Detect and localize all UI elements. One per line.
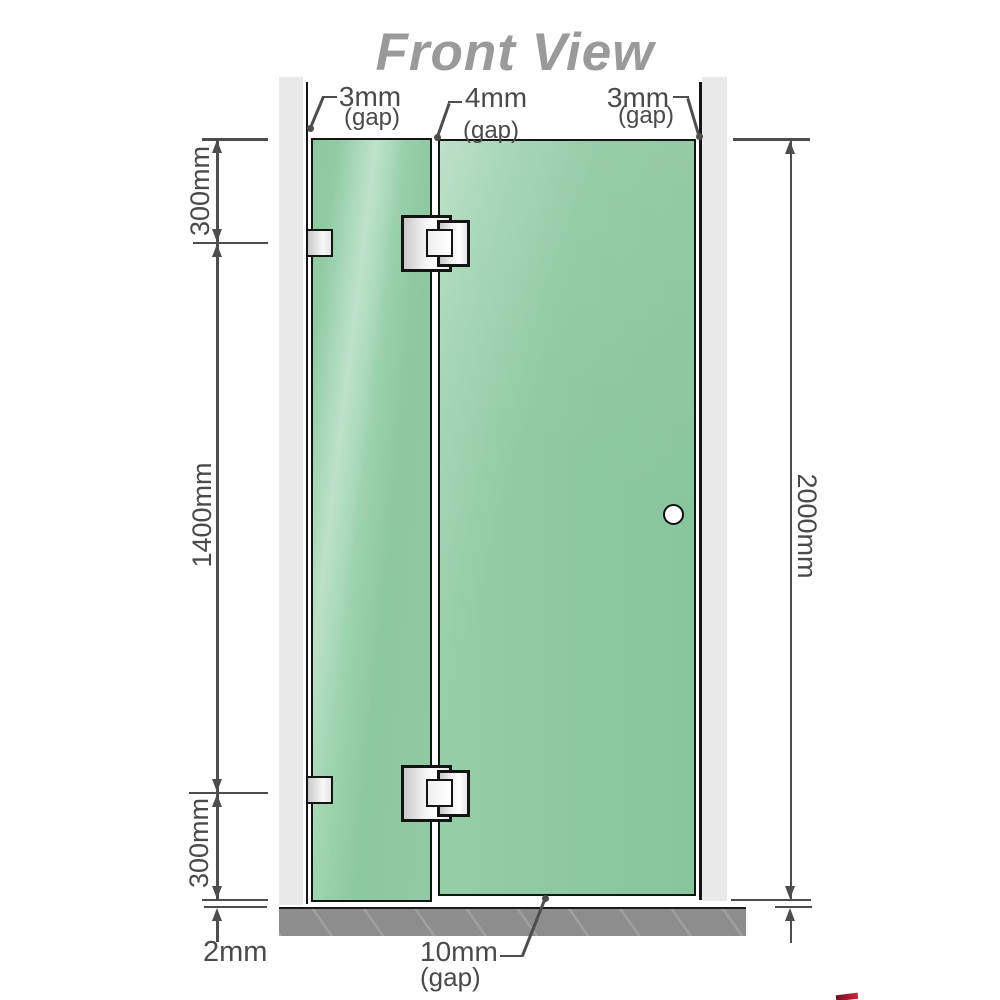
front-view-diagram: Front View 300mm 1400mm 300mm xyxy=(0,0,1000,1000)
logo-fragment xyxy=(836,993,859,1000)
right-wall xyxy=(702,77,727,901)
page-title: Front View xyxy=(335,22,695,83)
arrow-icon xyxy=(785,908,795,921)
floor-bar xyxy=(279,907,746,936)
dim-label-floor-offset: 2mm xyxy=(203,936,267,969)
wall-bracket-bottom xyxy=(306,776,333,804)
dim-label-left-bottom: 300mm xyxy=(184,763,214,923)
door-glass-panel xyxy=(438,139,696,896)
leader-line-middle-gap xyxy=(436,103,450,138)
right-wall-edge-line xyxy=(699,82,702,900)
gap-label-bottom-unit: (gap) xyxy=(420,962,481,993)
right-tick-top xyxy=(733,138,810,141)
leader-elbow-bottom-gap xyxy=(500,955,523,958)
hinge-top xyxy=(401,215,470,272)
gap-label-right-unit: (gap) xyxy=(606,102,686,130)
hinge-bottom xyxy=(401,765,470,822)
hinge-top-pivot xyxy=(426,229,453,257)
left-wall xyxy=(279,77,303,905)
arrow-icon xyxy=(785,141,795,154)
right-tick-bottom xyxy=(731,899,811,902)
wall-bracket-top xyxy=(306,229,333,257)
door-panel-reflection xyxy=(440,141,694,894)
gap-label-left-unit: (gap) xyxy=(332,104,412,132)
dim-label-right-height: 2000mm xyxy=(792,446,822,606)
door-knob xyxy=(663,504,684,525)
hinge-bottom-pivot xyxy=(426,779,453,807)
dim-label-left-top: 300mm xyxy=(185,111,215,271)
gap-label-middle-unit: (gap) xyxy=(451,117,531,145)
gap-label-middle-value: 4mm xyxy=(456,82,536,114)
right-2mm-stem xyxy=(790,921,793,943)
arrow-icon xyxy=(785,886,795,899)
leader-line-left-gap xyxy=(309,97,324,129)
dim-label-left-middle: 1400mm xyxy=(187,435,217,595)
